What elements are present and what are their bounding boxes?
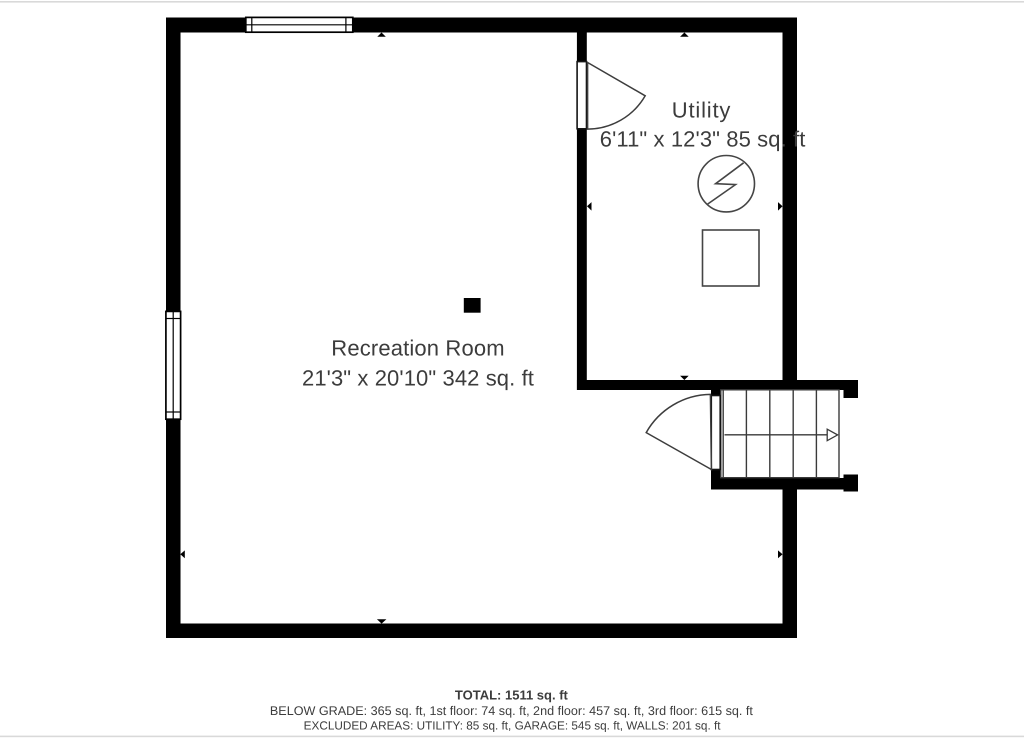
svg-text:6'11" x 12'3" 85 sq. ft: 6'11" x 12'3" 85 sq. ft (600, 126, 806, 151)
svg-text:EXCLUDED AREAS: UTILITY: 85 sq: EXCLUDED AREAS: UTILITY: 85 sq. ft, GARA… (304, 719, 722, 732)
svg-text:Utility: Utility (672, 97, 731, 122)
svg-text:Recreation Room: Recreation Room (331, 336, 504, 361)
svg-text:TOTAL: 1511 sq. ft: TOTAL: 1511 sq. ft (455, 688, 569, 703)
svg-text:BELOW GRADE: 365 sq. ft, 1st f: BELOW GRADE: 365 sq. ft, 1st floor: 74 s… (270, 704, 753, 718)
svg-text:21'3" x 20'10" 342 sq. ft: 21'3" x 20'10" 342 sq. ft (302, 365, 534, 390)
